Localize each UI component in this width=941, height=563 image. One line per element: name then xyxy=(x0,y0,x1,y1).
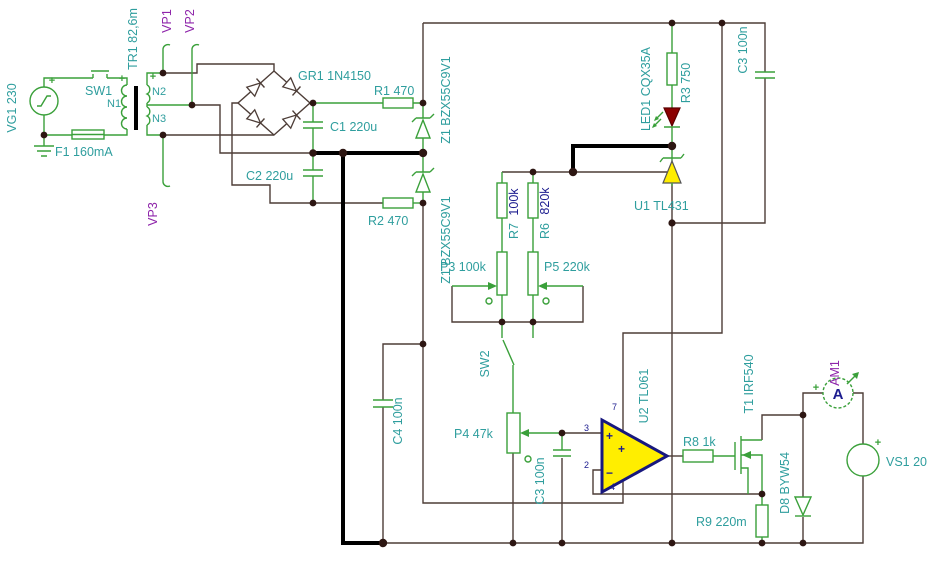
label-c3-bottom: C3 100n xyxy=(533,457,547,504)
capacitor-c3-bottom[interactable]: C3 100n xyxy=(533,433,571,505)
label-c3-top: C3 100n xyxy=(736,26,750,73)
potentiometer-p5[interactable]: P5 220k xyxy=(528,252,591,322)
voltage-source-vs1[interactable]: + VS1 20 xyxy=(847,437,927,476)
ammeter-letter: A xyxy=(833,386,844,403)
label-n1: N1 xyxy=(107,98,121,110)
opamp-pin4-number: 4 xyxy=(610,482,615,492)
diode-d8[interactable]: D8 BYW54 xyxy=(778,452,811,516)
label-sw2: SW2 xyxy=(478,350,492,377)
opamp-pin2-number: 2 xyxy=(584,460,589,470)
probe-vp2[interactable]: VP2 xyxy=(183,9,199,105)
mosfet-t1[interactable]: T1 IRF540 xyxy=(735,354,762,494)
label-c2: C2 220u xyxy=(246,169,293,183)
capacitor-c4[interactable]: C4 100n xyxy=(373,397,405,444)
probe-vp3[interactable]: VP3 xyxy=(146,135,170,226)
schematic-canvas: + VG1 230 SW1 F1 160mA + + TR1 82,6m N1 … xyxy=(0,0,941,563)
label-c1: C1 220u xyxy=(330,120,377,134)
label-r3: R3 750 xyxy=(679,63,693,103)
resistor-r8[interactable]: R8 1k xyxy=(683,435,735,462)
resistor-r7[interactable]: R7 100k xyxy=(497,172,521,252)
label-n3: N3 xyxy=(152,113,166,125)
resistor-r1[interactable]: R1 470 xyxy=(310,84,423,108)
label-t1: T1 IRF540 xyxy=(742,354,756,413)
capacitor-c3-top[interactable]: C3 100n xyxy=(736,26,775,78)
label-gr1: GR1 1N4150 xyxy=(298,69,371,83)
tr1-primary-plus-mark: + xyxy=(119,73,125,85)
label-r7-value: 100k xyxy=(507,188,521,216)
label-c4: C4 100n xyxy=(391,397,405,444)
vs1-plus-mark: + xyxy=(875,437,881,449)
potentiometer-p3[interactable]: P3 100k xyxy=(440,252,507,322)
label-led1: LED1 CQX35A xyxy=(639,46,653,131)
label-r8: R8 1k xyxy=(683,435,716,449)
resistor-r3[interactable]: R3 750 xyxy=(667,23,693,108)
tr1-secondary-plus-mark: + xyxy=(150,71,156,83)
label-u1: U1 TL431 xyxy=(634,199,689,213)
schematic-svg: + VG1 230 SW1 F1 160mA + + TR1 82,6m N1 … xyxy=(0,0,941,563)
label-vg1: VG1 230 xyxy=(5,83,19,132)
label-vp3: VP3 xyxy=(146,202,160,226)
opamp-u2[interactable]: + + − 3 2 7 4 U2 TL061 xyxy=(584,369,667,492)
shunt-regulator-u1[interactable]: U1 TL431 xyxy=(634,146,689,213)
opamp-minus-input-mark: − xyxy=(606,466,613,480)
label-n2: N2 xyxy=(152,86,166,98)
ammeter-am1[interactable]: A + AM1 xyxy=(813,360,859,408)
label-r2: R2 470 xyxy=(368,214,408,228)
label-f1: F1 160mA xyxy=(55,145,113,159)
potentiometer-p4[interactable]: P4 47k xyxy=(454,413,562,462)
label-sw1: SW1 xyxy=(85,84,112,98)
capacitor-c1[interactable]: C1 220u xyxy=(303,103,377,153)
zener-z1a[interactable]: Z1 BZX55C9V1 xyxy=(412,56,453,153)
label-p3: P3 100k xyxy=(440,260,487,274)
opamp-pin7-number: 7 xyxy=(612,402,617,412)
label-r6-ref: R6 xyxy=(538,223,552,239)
label-p5: P5 220k xyxy=(544,260,591,274)
probe-vp1[interactable]: VP1 xyxy=(160,9,174,73)
resistor-r9[interactable]: R9 220m xyxy=(696,494,768,543)
fuse-f1[interactable]: F1 160mA xyxy=(44,129,127,159)
label-z1a: Z1 BZX55C9V1 xyxy=(439,56,453,144)
label-r7-ref: R7 xyxy=(507,223,521,239)
switch-sw2[interactable]: SW2 xyxy=(478,322,533,413)
label-vp2: VP2 xyxy=(183,9,197,33)
opamp-pin3-number: 3 xyxy=(584,423,589,433)
switch-sw1[interactable]: SW1 xyxy=(85,71,112,98)
vg1-plus-mark: + xyxy=(49,75,55,87)
label-am1: AM1 xyxy=(828,360,842,386)
label-vs1: VS1 20 xyxy=(886,455,927,469)
label-r1: R1 470 xyxy=(374,84,414,98)
transformer-tr1[interactable]: + + TR1 82,6m N1 N2 N3 xyxy=(107,8,192,135)
label-r6-value: 820k xyxy=(538,187,552,215)
capacitor-c2[interactable]: C2 220u xyxy=(246,155,323,203)
resistor-r6[interactable]: R6 820k xyxy=(528,172,552,252)
routing-wires xyxy=(163,23,863,543)
label-tr1: TR1 82,6m xyxy=(126,8,140,70)
label-r9: R9 220m xyxy=(696,515,747,529)
label-p4: P4 47k xyxy=(454,427,494,441)
am1-plus-mark: + xyxy=(813,382,819,394)
label-vp1: VP1 xyxy=(160,9,174,33)
label-u2: U2 TL061 xyxy=(637,369,651,424)
opamp-plus-input-mark: + xyxy=(606,429,613,443)
opamp-plus-body-mark: + xyxy=(618,442,625,456)
label-d8: D8 BYW54 xyxy=(778,452,792,514)
